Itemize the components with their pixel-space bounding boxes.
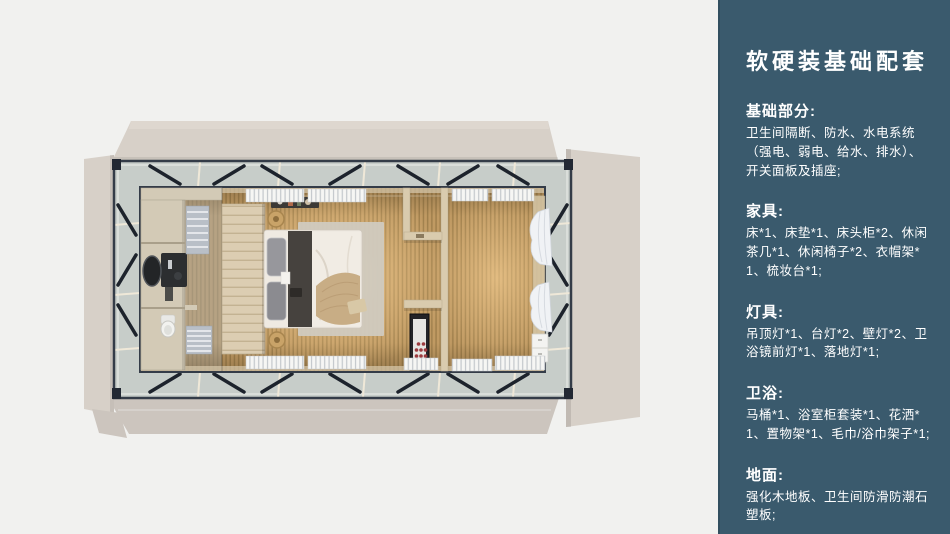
- towel-radiator-bottom: [186, 326, 212, 354]
- section-body: 强化木地板、卫生间防滑防潮石塑板;: [746, 488, 932, 526]
- section-body: 马桶*1、浴室柜套装*1、花洒*1、置物架*1、毛巾/浴巾架子*1;: [746, 406, 932, 444]
- section-body: 吊顶灯*1、台灯*2、壁灯*2、卫浴镜前灯*1、落地灯*1;: [746, 325, 932, 363]
- towel-radiator-top: [186, 206, 209, 254]
- page-title: 软硬装基础配套: [746, 44, 932, 76]
- section-lighting: 灯具: 吊顶灯*1、台灯*2、壁灯*2、卫浴镜前灯*1、落地灯*1;: [746, 301, 932, 363]
- section-heading: 地面:: [746, 464, 932, 485]
- section-heading: 家具:: [746, 200, 932, 221]
- section-heading: 灯具:: [746, 301, 932, 322]
- section-furniture: 家具: 床*1、床垫*1、床头柜*2、休闲茶几*1、休闲椅子*2、衣帽架*1、梳…: [746, 200, 932, 280]
- section-heading: 基础部分:: [746, 100, 932, 121]
- pillow: [267, 238, 286, 276]
- section-sanitary: 卫浴: 马桶*1、浴室柜套装*1、花洒*1、置物架*1、毛巾/浴巾架子*1;: [746, 382, 932, 444]
- bed-tray: [290, 288, 302, 297]
- container-home-topdown-svg: [0, 0, 718, 534]
- section-heading: 卫浴:: [746, 382, 932, 403]
- section-body: 卫生间隔断、防水、水电系统（强电、弱电、给水、排水）、开关面板及插座;: [746, 124, 932, 180]
- floorplan-render: [0, 0, 718, 534]
- toilet: [161, 315, 175, 337]
- slide-canvas: 软硬装基础配套 基础部分: 卫生间隔断、防水、水电系统（强电、弱电、给水、排水）…: [0, 0, 950, 534]
- vanity-mirror: [143, 256, 161, 286]
- headboard: [288, 231, 312, 327]
- wardrobe: [222, 204, 265, 354]
- section-basics: 基础部分: 卫生间隔断、防水、水电系统（强电、弱电、给水、排水）、开关面板及插座…: [746, 100, 932, 180]
- section-body: 床*1、床垫*1、床头柜*2、休闲茶几*1、休闲椅子*2、衣帽架*1、梳妆台*1…: [746, 224, 932, 280]
- spec-sidebar: 软硬装基础配套 基础部分: 卫生间隔断、防水、水电系统（强电、弱电、给水、排水）…: [718, 0, 950, 534]
- pillow: [267, 282, 286, 320]
- section-flooring: 地面: 强化木地板、卫生间防滑防潮石塑板;: [746, 464, 932, 526]
